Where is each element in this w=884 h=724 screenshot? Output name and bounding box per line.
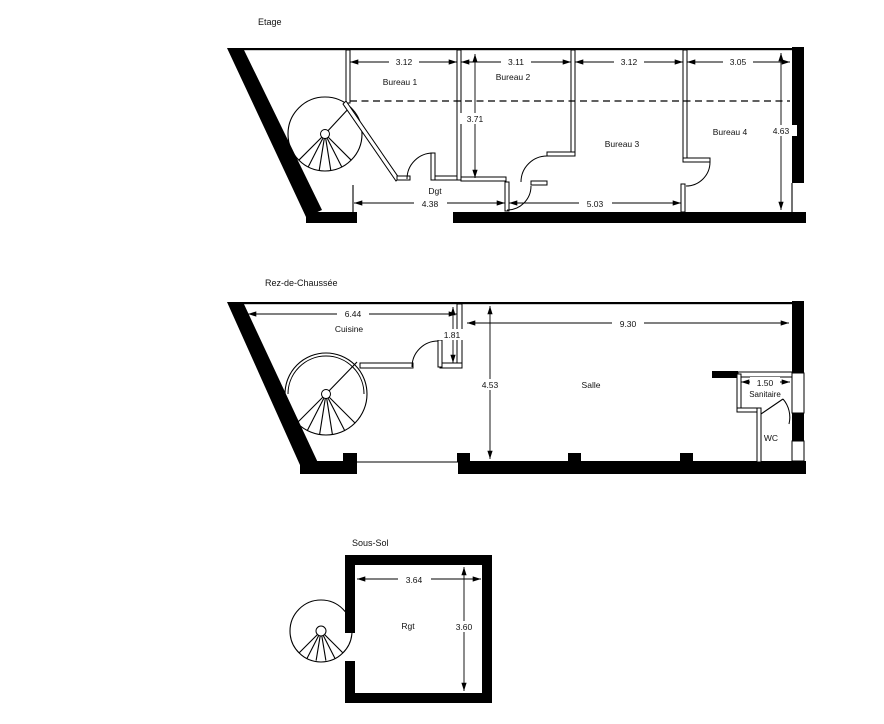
rdc-outer-walls (227, 301, 806, 474)
rdc-partition-walls (360, 304, 792, 462)
room-label-bureau2: Bureau 2 (496, 72, 531, 82)
soussol-door-opening (344, 633, 356, 661)
rdc-room-labels: Cuisine Salle Sanitaire WC (335, 324, 782, 443)
etage-door-corridor (505, 182, 531, 211)
rdc-window-sanitaire (792, 373, 804, 413)
floorplan-drawing: Etage (0, 0, 884, 724)
dim-etage-bottom-right: 5.03 (587, 199, 604, 209)
dim-recess-depth: 1.81 (444, 330, 461, 340)
etage-door-dgt-1 (407, 153, 435, 180)
etage-door-bureau3 (521, 152, 575, 182)
room-label-bureau1: Bureau 1 (383, 77, 418, 87)
floor-title-rdc: Rez-de-Chaussée (265, 278, 338, 288)
room-label-dgt: Dgt (428, 186, 442, 196)
dim-corridor-length: 4.38 (422, 199, 439, 209)
dim-rdc-depth: 4.53 (482, 380, 499, 390)
rdc-window-wc (792, 441, 804, 461)
rdc-stair-newel (322, 390, 331, 399)
room-label-rgt: Rgt (401, 621, 415, 631)
floor-plan-etage: Etage (227, 17, 806, 223)
soussol-stair-newel (316, 626, 326, 636)
dim-bureau2-width: 3.11 (508, 57, 524, 67)
rdc-door-cuisine (412, 340, 442, 367)
dim-bureau4-width: 3.05 (730, 57, 747, 67)
room-label-cuisine: Cuisine (335, 324, 364, 334)
etage-door-bureau4 (683, 158, 710, 186)
etage-stair-newel (321, 130, 330, 139)
dim-sanitaire-width: 1.50 (757, 378, 774, 388)
dim-soussol-width: 3.64 (406, 575, 423, 585)
dim-salle-width: 9.30 (620, 319, 637, 329)
rdc-door-wc (761, 399, 790, 424)
dim-bureau1-width: 3.12 (396, 57, 413, 67)
floor-title-soussol: Sous-Sol (352, 538, 389, 548)
dim-etage-depth-right: 4.63 (773, 126, 790, 136)
floor-plan-soussol: Sous-Sol 3.64 3.60 Rgt (290, 538, 492, 703)
room-label-bureau4: Bureau 4 (713, 127, 748, 137)
floor-plan-rdc: Rez-de-Chaussée (227, 278, 806, 474)
dim-bureau3-width: 3.12 (621, 57, 638, 67)
dim-soussol-depth: 3.60 (456, 622, 473, 632)
dim-etage-depth-left: 3.71 (467, 114, 484, 124)
dim-cuisine-width: 6.44 (345, 309, 362, 319)
room-label-wc: WC (764, 433, 778, 443)
soussol-spiral-staircase (290, 600, 352, 662)
room-label-bureau3: Bureau 3 (605, 139, 640, 149)
room-label-sanitaire: Sanitaire (749, 390, 781, 399)
rdc-spiral-staircase (285, 353, 367, 435)
room-label-salle: Salle (582, 380, 601, 390)
floorplan-page: Etage (0, 0, 884, 724)
floor-title-etage: Etage (258, 17, 282, 27)
rdc-dimension-lines (248, 306, 790, 459)
